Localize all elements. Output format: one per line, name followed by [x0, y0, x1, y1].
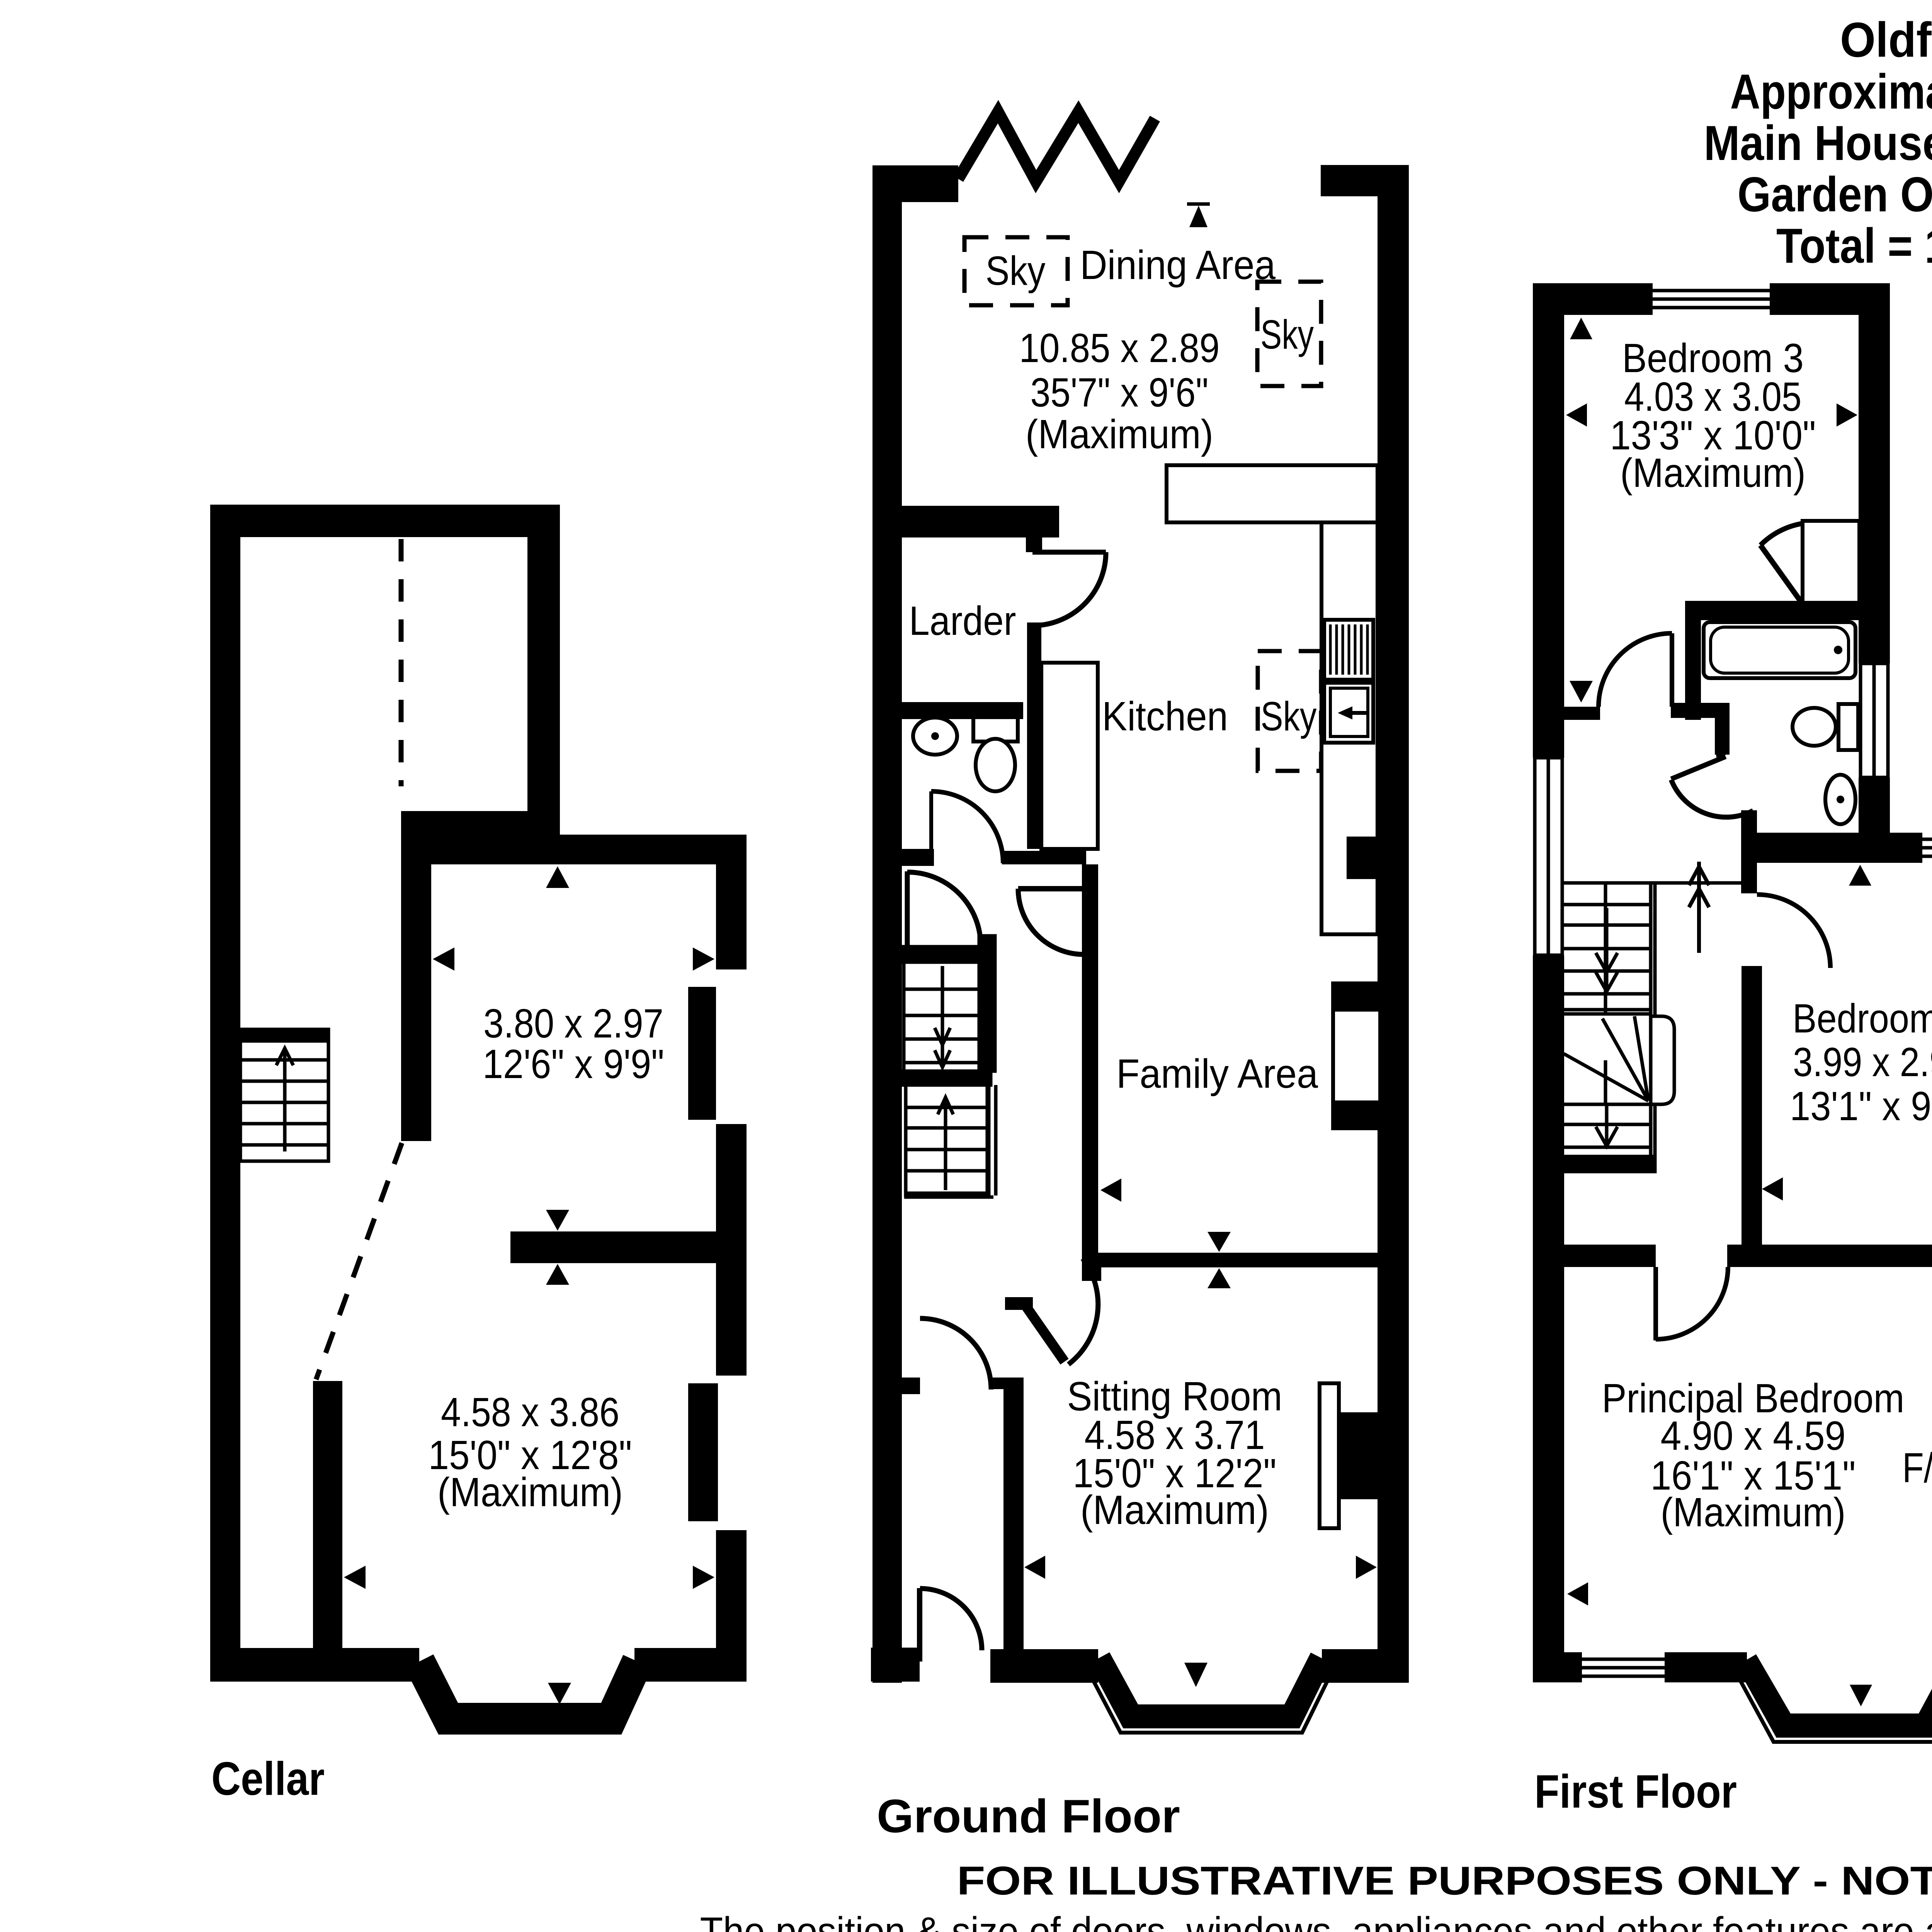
- svg-text:Approximate Gross Internal Are: Approximate Gross Internal Area: [1730, 64, 1932, 119]
- svg-text:4.90 x 4.59: 4.90 x 4.59: [1661, 1413, 1846, 1459]
- svg-text:(Maximum): (Maximum): [1080, 1487, 1269, 1533]
- svg-text:The position & size of doors,: The position & size of doors, windows, a…: [700, 1909, 1932, 1932]
- svg-text:Dining Area: Dining Area: [1080, 242, 1276, 288]
- svg-text:Ground Floor: Ground Floor: [877, 1790, 1180, 1842]
- svg-text:FOR ILLUSTRATIVE PURPOSES ONLY: FOR ILLUSTRATIVE PURPOSES ONLY - NOT TO …: [957, 1859, 1932, 1903]
- svg-text:F/P: F/P: [1902, 1444, 1932, 1492]
- svg-text:Oldfield Road, Bath: Oldfield Road, Bath: [1840, 12, 1932, 67]
- svg-text:Garden Office = 74 sq ft / 7 s: Garden Office = 74 sq ft / 7 sq m: [1738, 167, 1932, 222]
- svg-text:3.99 x 2.91: 3.99 x 2.91: [1793, 1039, 1932, 1085]
- svg-text:Total = 1,899 sq ft / 176 sq m: Total = 1,899 sq ft / 176 sq m: [1776, 218, 1932, 273]
- svg-text:Sky: Sky: [986, 248, 1046, 294]
- svg-text:Sky: Sky: [1261, 694, 1317, 739]
- svg-text:35'7" x 9'6": 35'7" x 9'6": [1031, 370, 1209, 415]
- svg-text:10.85 x 2.89: 10.85 x 2.89: [1019, 325, 1220, 371]
- svg-text:(Maximum): (Maximum): [1620, 450, 1806, 496]
- svg-text:(Maximum): (Maximum): [1661, 1490, 1846, 1535]
- svg-text:Bedroom 2: Bedroom 2: [1793, 996, 1932, 1041]
- svg-text:Main House = 1,825 sq ft / 170: Main House = 1,825 sq ft / 170 sq m: [1704, 116, 1932, 170]
- svg-text:Cellar: Cellar: [211, 1752, 325, 1805]
- svg-text:Family Area: Family Area: [1116, 1051, 1318, 1097]
- svg-text:Sky: Sky: [1260, 312, 1314, 357]
- svg-text:Kitchen: Kitchen: [1102, 694, 1228, 739]
- svg-text:(Maximum): (Maximum): [437, 1469, 623, 1515]
- svg-text:First Floor: First Floor: [1534, 1765, 1737, 1818]
- svg-text:Larder: Larder: [909, 598, 1016, 644]
- svg-text:3.80 x 2.97: 3.80 x 2.97: [483, 1001, 663, 1046]
- svg-text:4.58 x 3.86: 4.58 x 3.86: [441, 1389, 619, 1435]
- svg-text:13'1" x 9'7": 13'1" x 9'7": [1790, 1083, 1932, 1129]
- svg-text:12'6" x 9'9": 12'6" x 9'9": [483, 1041, 664, 1087]
- svg-text:(Maximum): (Maximum): [1026, 412, 1213, 457]
